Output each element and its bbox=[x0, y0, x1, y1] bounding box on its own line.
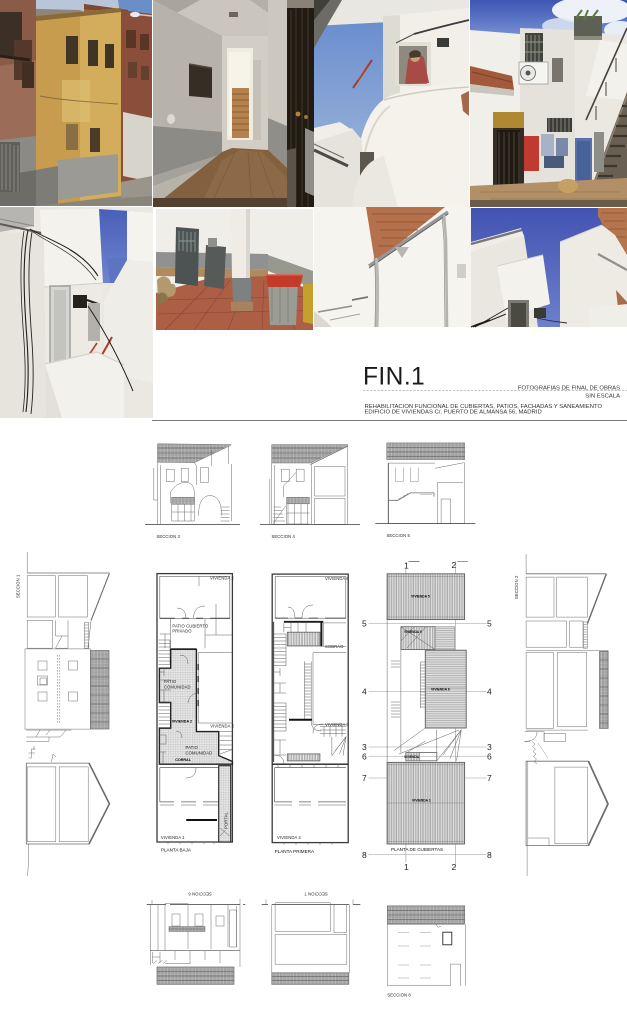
svg-text:PRIVADO: PRIVADO bbox=[172, 629, 192, 634]
svg-text:SECCION 5: SECCION 5 bbox=[387, 533, 411, 538]
svg-text:SECCION 7: SECCION 7 bbox=[304, 892, 328, 897]
svg-text:SECCION 3: SECCION 3 bbox=[157, 534, 181, 539]
svg-text:COMUNIDAD: COMUNIDAD bbox=[164, 684, 191, 689]
svg-text:PATIO: PATIO bbox=[186, 745, 199, 750]
svg-text:4: 4 bbox=[487, 687, 492, 697]
svg-text:VIVIENDA 2: VIVIENDA 2 bbox=[210, 724, 234, 729]
svg-text:COMUNIDAD: COMUNIDAD bbox=[186, 750, 213, 755]
svg-text:1: 1 bbox=[404, 862, 409, 872]
svg-text:VIVIENDA 6: VIVIENDA 6 bbox=[325, 576, 349, 581]
svg-text:VIVIENDA 5: VIVIENDA 5 bbox=[404, 630, 422, 634]
svg-text:VIVIENDA 2: VIVIENDA 2 bbox=[210, 576, 234, 581]
svg-text:4: 4 bbox=[362, 687, 367, 697]
svg-text:PLANTA PRIMERA: PLANTA PRIMERA bbox=[275, 849, 315, 854]
svg-text:VIVIENDA 5: VIVIENDA 5 bbox=[411, 595, 430, 599]
svg-text:EDIFICIO DE VIVIENDAS C/. PUER: EDIFICIO DE VIVIENDAS C/. PUERTO DE ALMA… bbox=[365, 410, 542, 416]
svg-text:6: 6 bbox=[362, 751, 367, 761]
svg-text:8: 8 bbox=[362, 850, 367, 860]
svg-text:6: 6 bbox=[487, 751, 492, 761]
svg-text:PLANTA DE CUBIERTAS: PLANTA DE CUBIERTAS bbox=[391, 847, 443, 852]
svg-text:VIVIENDA 6: VIVIENDA 6 bbox=[325, 722, 349, 727]
svg-text:VIVIENDA 4: VIVIENDA 4 bbox=[277, 835, 301, 840]
svg-text:VIVIENDA: VIVIENDA bbox=[404, 755, 420, 759]
svg-text:SECCION 1: SECCION 1 bbox=[16, 574, 21, 598]
svg-text:VIVIENDA 6: VIVIENDA 6 bbox=[431, 688, 450, 692]
svg-text:SIN ESCALA: SIN ESCALA bbox=[585, 393, 620, 399]
svg-text:7: 7 bbox=[487, 773, 492, 783]
svg-text:PORTAL: PORTAL bbox=[223, 811, 228, 829]
svg-text:5: 5 bbox=[487, 619, 492, 629]
svg-text:SECCION 6: SECCION 6 bbox=[188, 891, 212, 896]
svg-text:SECCION 4: SECCION 4 bbox=[272, 534, 296, 539]
svg-text:CORRAL: CORRAL bbox=[175, 758, 192, 762]
svg-text:2: 2 bbox=[452, 862, 457, 872]
svg-text:5: 5 bbox=[362, 619, 367, 629]
svg-text:PLANTA BAJA: PLANTA BAJA bbox=[161, 848, 192, 853]
svg-text:2: 2 bbox=[452, 560, 457, 570]
svg-text:SECCION 2: SECCION 2 bbox=[514, 575, 519, 599]
svg-text:FIN.1: FIN.1 bbox=[363, 364, 425, 391]
svg-text:VIVIENDA 1: VIVIENDA 1 bbox=[161, 835, 185, 840]
svg-text:1: 1 bbox=[404, 561, 409, 571]
svg-text:SECCION 8: SECCION 8 bbox=[387, 993, 411, 998]
svg-text:FOTOGRAFIAS DE FINAL DE OBRAS: FOTOGRAFIAS DE FINAL DE OBRAS bbox=[518, 386, 620, 392]
svg-text:VIVIENDA 1: VIVIENDA 1 bbox=[412, 799, 431, 803]
svg-text:7: 7 bbox=[362, 773, 367, 783]
svg-text:VIVIENDA 2: VIVIENDA 2 bbox=[172, 719, 192, 723]
svg-text:8: 8 bbox=[487, 850, 492, 860]
svg-text:SOBRAO: SOBRAO bbox=[325, 644, 344, 649]
